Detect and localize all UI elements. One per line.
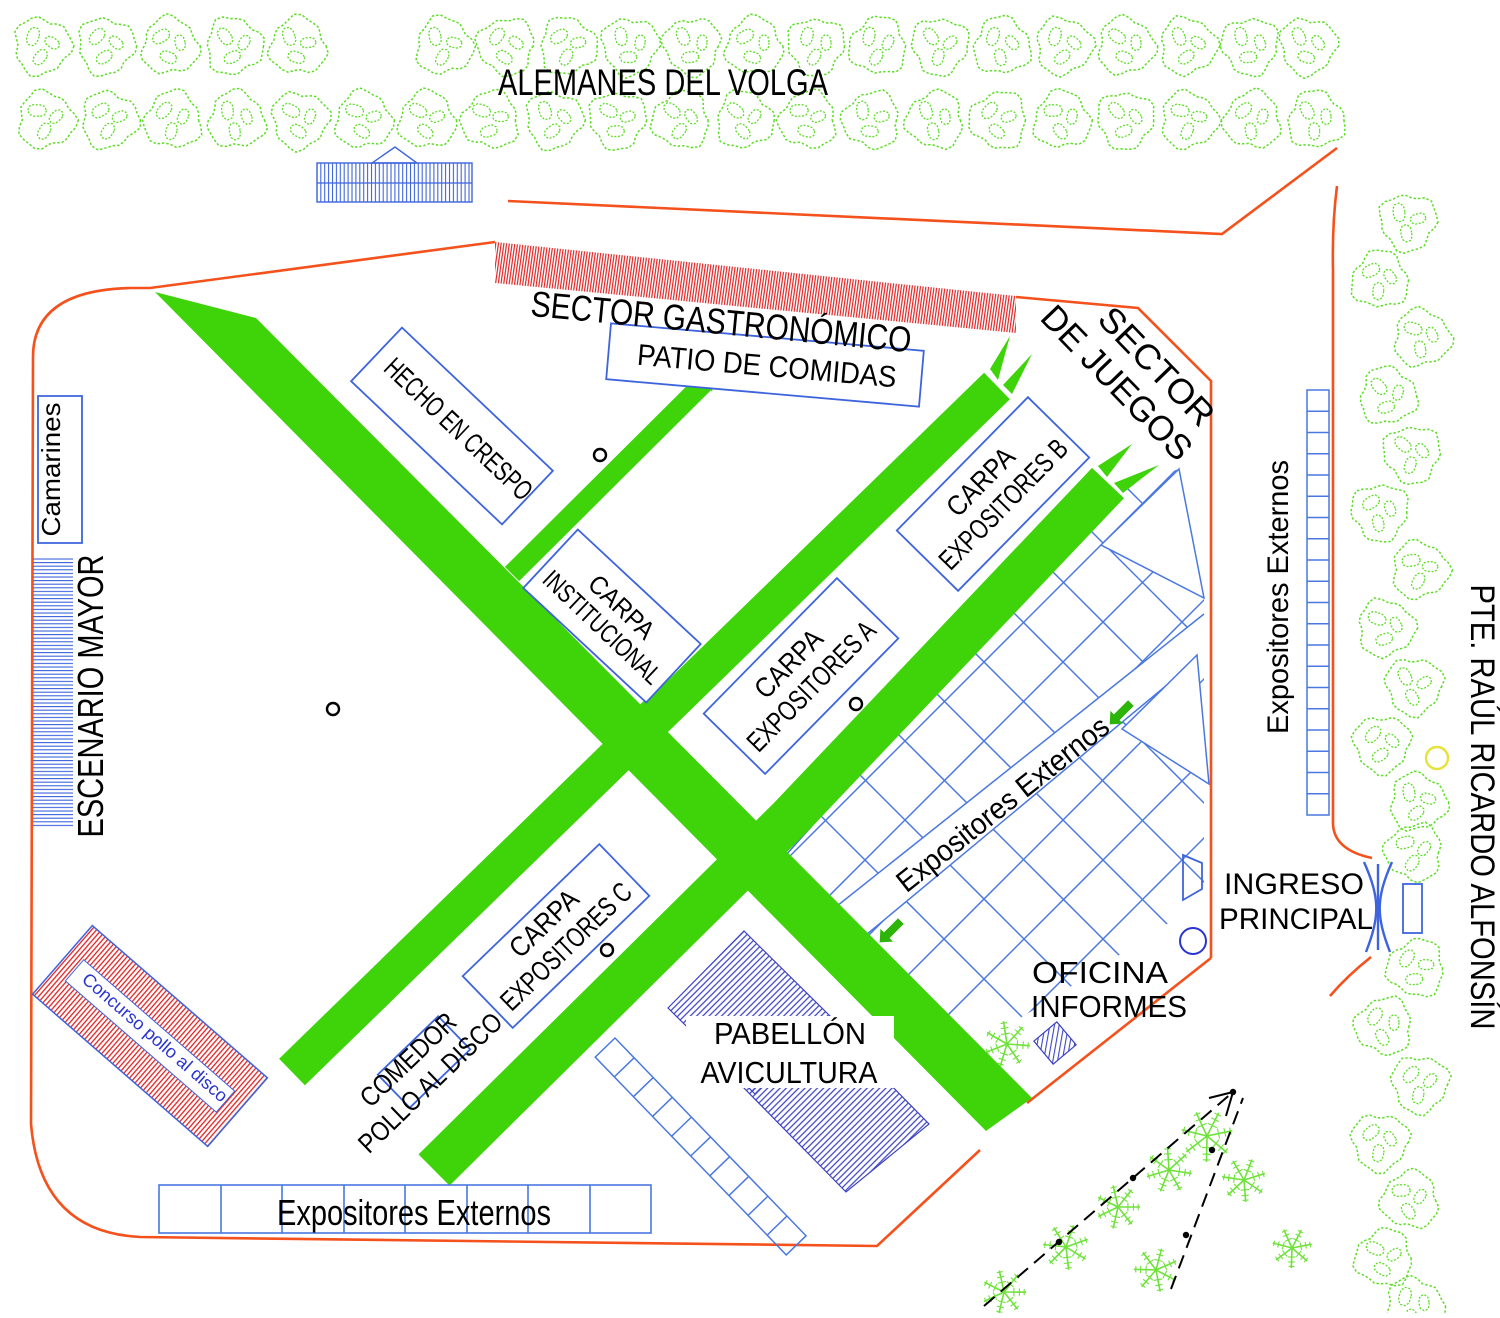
svg-text:INGRESO: INGRESO bbox=[1224, 868, 1364, 901]
svg-text:PRINCIPAL: PRINCIPAL bbox=[1219, 903, 1373, 936]
svg-text:AVICULTURA: AVICULTURA bbox=[701, 1055, 878, 1090]
svg-text:ALEMANES DEL VOLGA: ALEMANES DEL VOLGA bbox=[498, 62, 828, 103]
svg-text:OFICINA: OFICINA bbox=[1032, 955, 1168, 990]
svg-text:INFORMES: INFORMES bbox=[1031, 989, 1187, 1024]
svg-text:PTE. RAÚL RICARDO ALFONSÍN: PTE. RAÚL RICARDO ALFONSÍN bbox=[1463, 585, 1500, 1030]
svg-text:Expositores Externos: Expositores Externos bbox=[1262, 460, 1295, 734]
svg-text:Camarines: Camarines bbox=[36, 403, 66, 537]
svg-text:PABELLÓN: PABELLÓN bbox=[714, 1016, 866, 1051]
svg-text:Expositores Externos: Expositores Externos bbox=[277, 1192, 551, 1233]
svg-text:ESCENARIO MAYOR: ESCENARIO MAYOR bbox=[70, 555, 111, 838]
